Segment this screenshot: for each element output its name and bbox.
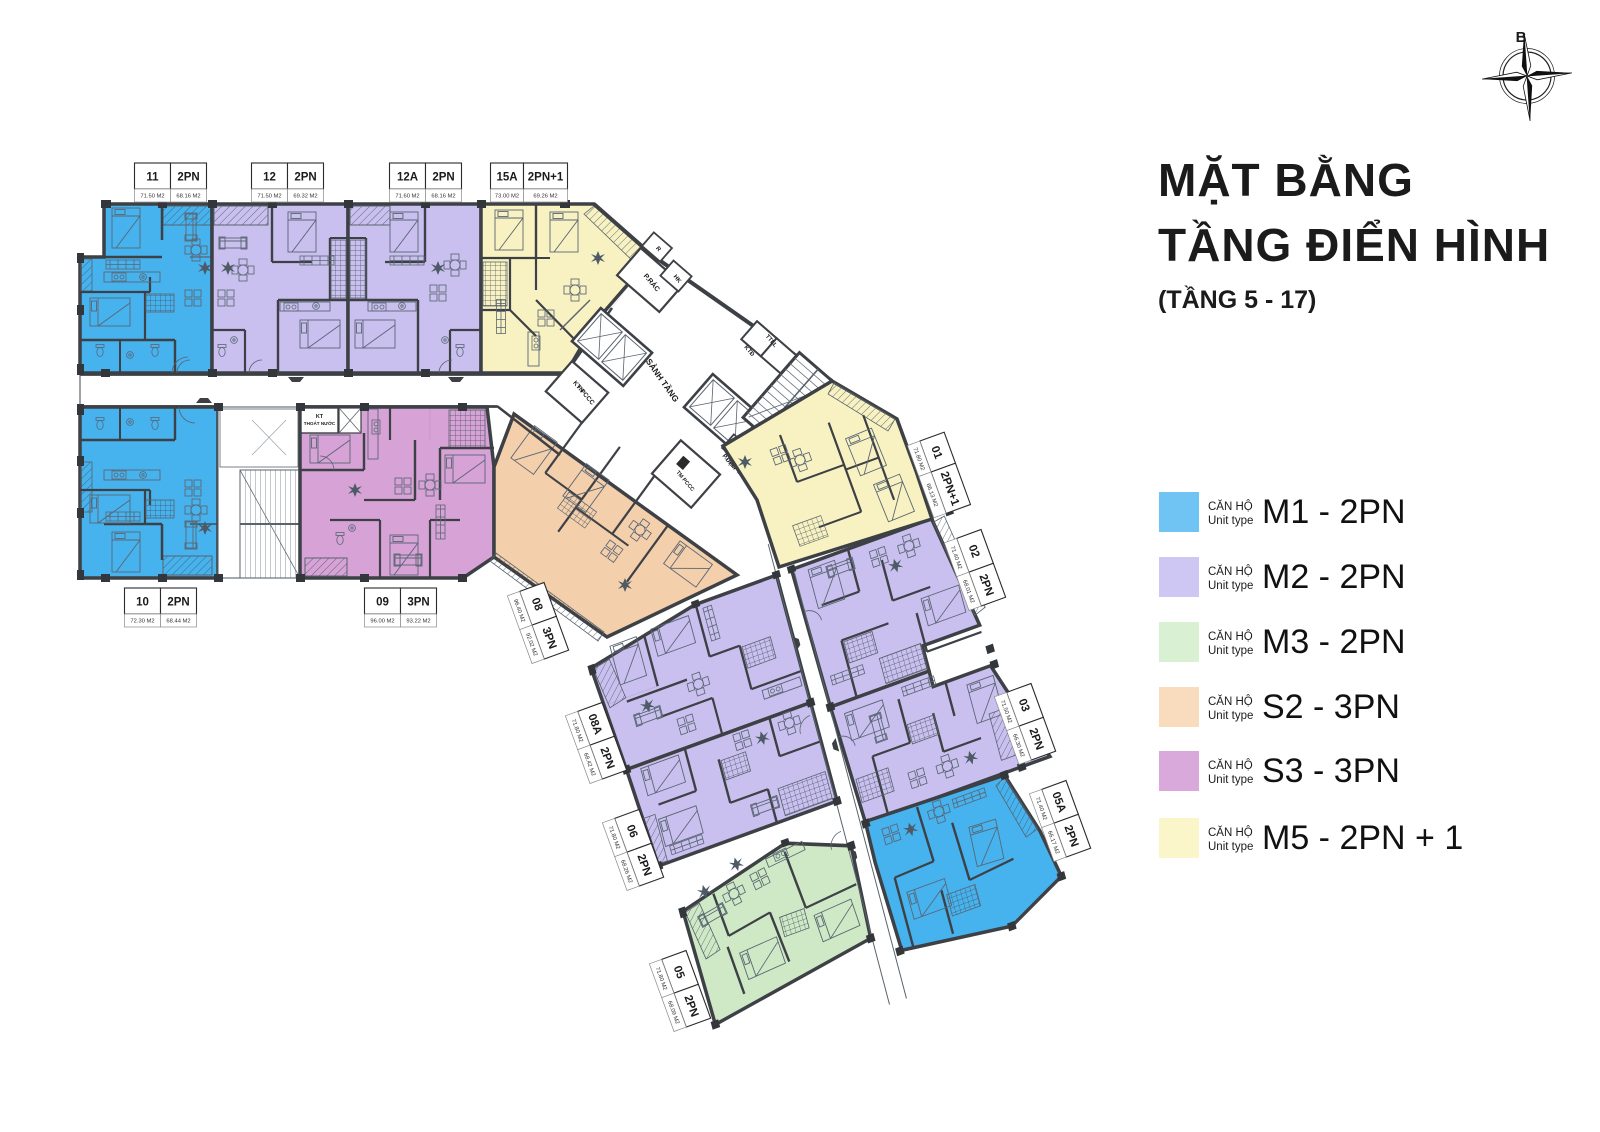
svg-text:12: 12 (263, 172, 276, 184)
svg-text:12A: 12A (397, 172, 418, 184)
svg-text:MẶT BẰNG: MẶT BẰNG (1158, 154, 1414, 206)
svg-text:CĂN HỘ: CĂN HỘ (1208, 826, 1253, 839)
svg-text:CĂN HỘ: CĂN HỘ (1208, 759, 1253, 772)
svg-text:71.60 M2: 71.60 M2 (395, 194, 419, 200)
svg-text:2PN: 2PN (167, 597, 189, 609)
svg-text:11: 11 (146, 172, 159, 184)
svg-text:73.00 M2: 73.00 M2 (495, 194, 519, 200)
svg-text:69.26 M2: 69.26 M2 (533, 194, 557, 200)
svg-text:68.16 M2: 68.16 M2 (431, 194, 455, 200)
svg-text:Unit type: Unit type (1208, 515, 1253, 527)
svg-text:71.50 M2: 71.50 M2 (257, 194, 281, 200)
svg-text:Unit type: Unit type (1208, 774, 1253, 786)
svg-text:CĂN HỘ: CĂN HỘ (1208, 565, 1253, 578)
svg-text:Unit type: Unit type (1208, 841, 1253, 853)
svg-text:2PN+1: 2PN+1 (528, 172, 564, 184)
svg-text:CĂN HỘ: CĂN HỘ (1208, 695, 1253, 708)
svg-text:CĂN HỘ: CĂN HỘ (1208, 500, 1253, 513)
svg-text:2PN: 2PN (432, 172, 454, 184)
svg-text:10: 10 (136, 597, 149, 609)
svg-text:72.30 M2: 72.30 M2 (130, 619, 154, 625)
svg-text:CĂN HỘ: CĂN HỘ (1208, 630, 1253, 643)
svg-text:15A: 15A (496, 172, 517, 184)
svg-text:2PN: 2PN (177, 172, 199, 184)
svg-text:Unit type: Unit type (1208, 580, 1253, 592)
svg-text:(TẦNG 5 - 17): (TẦNG 5 - 17) (1158, 285, 1316, 314)
svg-text:Unit type: Unit type (1208, 710, 1253, 722)
svg-text:2PN: 2PN (294, 172, 316, 184)
svg-text:M2 - 2PN: M2 - 2PN (1262, 558, 1406, 596)
svg-text:Unit type: Unit type (1208, 645, 1253, 657)
svg-text:71.50 M2: 71.50 M2 (140, 194, 164, 200)
svg-text:68.16 M2: 68.16 M2 (176, 194, 200, 200)
svg-text:69.32 M2: 69.32 M2 (293, 194, 317, 200)
svg-text:96.00 M2: 96.00 M2 (370, 619, 394, 625)
svg-text:THOÁT NƯỚC: THOÁT NƯỚC (304, 419, 336, 426)
svg-text:S3 - 3PN: S3 - 3PN (1262, 752, 1400, 790)
svg-text:M5 - 2PN + 1: M5 - 2PN + 1 (1262, 819, 1463, 857)
svg-text:KT: KT (316, 414, 324, 420)
svg-text:M1 - 2PN: M1 - 2PN (1262, 493, 1406, 531)
svg-text:TẦNG ĐIỂN HÌNH: TẦNG ĐIỂN HÌNH (1158, 219, 1550, 271)
svg-text:93.22 M2: 93.22 M2 (406, 619, 430, 625)
svg-text:09: 09 (376, 597, 389, 609)
svg-text:3PN: 3PN (407, 597, 429, 609)
svg-text:B: B (1516, 29, 1527, 46)
svg-text:S2 - 3PN: S2 - 3PN (1262, 688, 1400, 726)
svg-text:M3 - 2PN: M3 - 2PN (1262, 623, 1406, 661)
svg-text:68.44 M2: 68.44 M2 (166, 619, 190, 625)
